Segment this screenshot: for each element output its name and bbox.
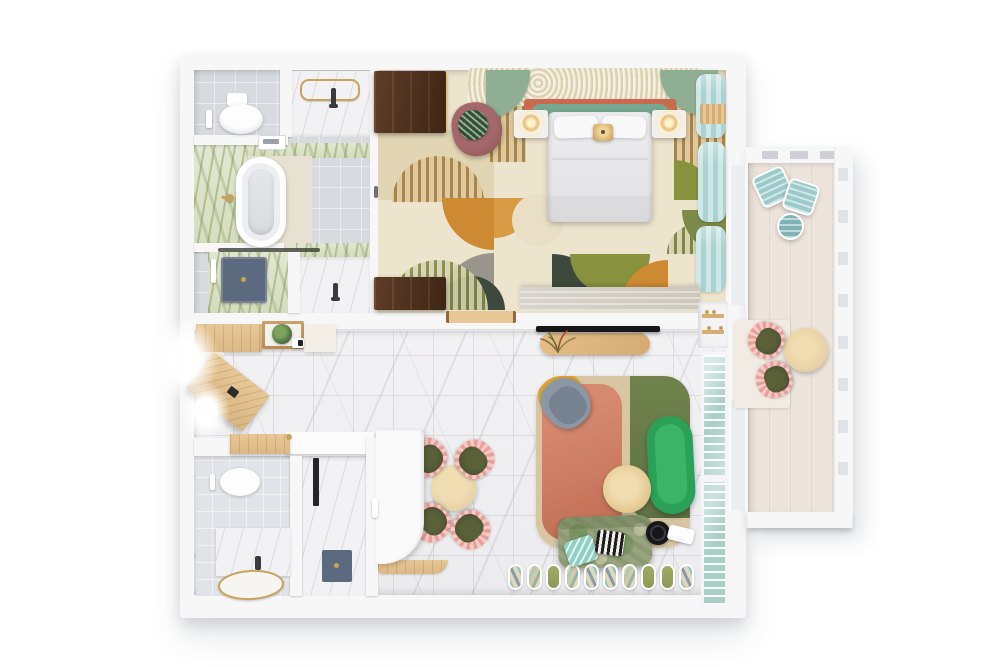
bedroom-curtain-bottom [696,226,726,292]
coffee-table [603,465,651,513]
shower-drain-2 [334,563,339,568]
flush-plate-2 [210,474,215,490]
floorplan-canvas [0,0,1000,667]
corner-wood-slats [700,104,726,124]
balcony-wood-table [784,328,828,372]
railing-slot [790,151,808,159]
bottle-icon [705,310,709,314]
toilet-2 [220,468,260,496]
walnut-wardrobe [374,71,446,133]
shower-control-plate [211,259,216,283]
window-glass-upper [730,165,746,305]
window-glass-lower [730,400,746,510]
bench-cushion [641,564,656,590]
kitchenette-counter [376,430,424,564]
bottle-icon [707,326,711,330]
dried-flower-arrangement [538,326,580,356]
railing-slot [762,151,778,159]
bench-cushion [584,564,599,590]
bench-cushion [622,564,637,590]
table-lamp-left [520,112,542,134]
bench-cushion [679,564,694,590]
railing-rungs [838,168,848,498]
window-bench-cushions [508,564,694,590]
vanity-partition-wall [288,250,300,313]
shower-column [313,458,319,506]
bench-cushion [603,564,618,590]
bathroom2-faucet [255,556,261,570]
potted-plant [272,324,292,344]
table-lamp-right [658,112,680,134]
door-handle [374,186,378,198]
gold-towel-rail [300,79,360,101]
bench-cushion [527,564,542,590]
bench-cushion [660,564,675,590]
vanity-faucet-handle [329,104,338,108]
bench-cushion [565,564,580,590]
bathroom2-wood-counter [230,434,290,454]
bottle-icon [712,310,716,314]
kettle-tray [292,338,304,348]
bathroom2-divider-wall [290,456,302,596]
bathroom2-counter [286,432,374,454]
bathroom2-vanity [216,528,290,576]
niche-shelf [702,314,724,318]
walnut-console [374,277,446,310]
balcony-frame-bottom [748,512,852,528]
bedroom-door-threshold [446,311,516,323]
bedroom-curtain-middle [698,142,726,222]
bench-cushion [546,564,561,590]
flush-plate [206,110,212,128]
robot-vacuum [646,521,670,545]
counter-handle [372,498,378,518]
entry-white-cabinet [304,324,336,352]
toilet-partition-wall [280,70,292,137]
zigzag-pillow [594,529,625,557]
bathtub-gold-faucet [226,194,234,202]
green-capsule-sofa [645,415,696,515]
travertine-bench [520,287,700,311]
wall-niche-tray [258,135,286,150]
shower-drain [241,277,246,282]
toilet [219,104,263,134]
rattan-pendant-lamp [593,124,613,141]
niche-shelf [702,330,724,334]
bed-pillow-left [554,115,599,139]
gold-accessory [286,434,292,440]
bottle-icon [719,326,723,330]
bench-cushion [508,564,523,590]
entry-oak-cabinet [196,324,262,352]
teal-louvered-shutters [701,352,728,608]
wall-niche-shelves [698,302,728,348]
teal-bistro-table [777,213,804,240]
vanity-bottom-faucet-handle [331,297,340,301]
freestanding-bathtub [236,157,286,247]
railing-slot [820,151,834,159]
